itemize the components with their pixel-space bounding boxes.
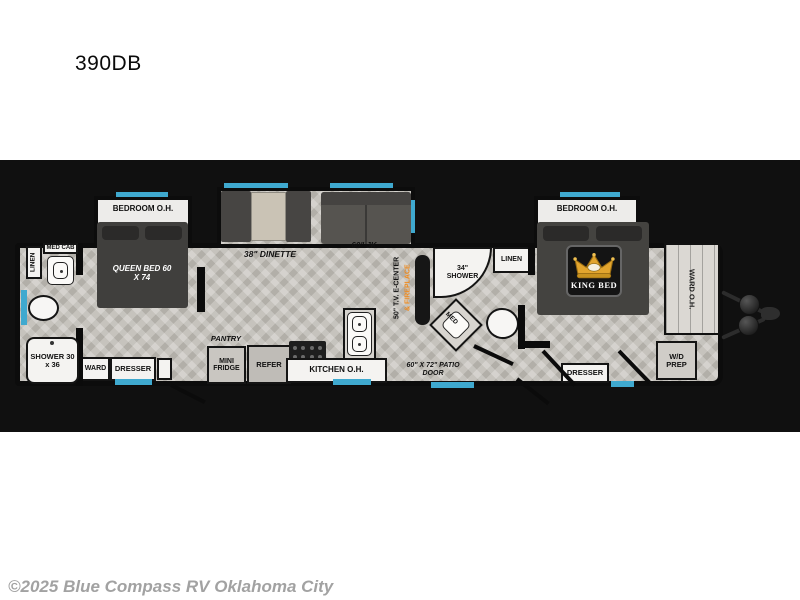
pillow bbox=[543, 226, 589, 241]
rear-bedroom-overhead-label: BEDROOM O.H. bbox=[538, 200, 636, 213]
window-accent bbox=[611, 381, 634, 387]
king-bed-label: KING BED bbox=[571, 280, 617, 290]
floorplan-band: BEDROOM O.H. BEDROOM O.H. 38" DINETTE 60… bbox=[0, 160, 800, 432]
queen-bed-label: QUEEN BED 60 X 74 bbox=[112, 264, 172, 282]
sofa-label: 60" JK bbox=[344, 241, 384, 250]
window-accent bbox=[115, 379, 152, 385]
interior-wall bbox=[197, 267, 205, 312]
mid-shower-label: 34" SHOWER bbox=[445, 265, 481, 280]
interior-wall bbox=[518, 341, 550, 348]
entry-door-swing bbox=[170, 383, 206, 404]
window-accent bbox=[431, 382, 474, 388]
dinette-seat bbox=[221, 191, 251, 242]
tv-center-label: 50" T.V. E-CENTER bbox=[392, 248, 403, 328]
med-cab-label: MED CAB bbox=[43, 243, 78, 254]
dinette-seat bbox=[286, 191, 311, 242]
ward-oh-cabinet: WARD O.H. bbox=[664, 243, 720, 335]
window-accent bbox=[116, 192, 168, 197]
copyright-text: ©2025 Blue Compass RV Oklahoma City bbox=[8, 577, 333, 597]
pantry-label: PANTRY bbox=[203, 335, 249, 344]
kitchen-sink bbox=[347, 312, 372, 356]
sink-drain bbox=[60, 270, 63, 273]
sofa-back bbox=[321, 192, 411, 205]
page-title: 390DB bbox=[75, 52, 142, 76]
front-wardrobe: WARD bbox=[81, 357, 110, 381]
interior-wall bbox=[528, 245, 535, 275]
queen-bed: QUEEN BED 60 X 74 bbox=[97, 222, 188, 308]
dinette-label: 38" DINETTE bbox=[234, 250, 306, 260]
king-bed: KING BED bbox=[537, 222, 649, 315]
pillow bbox=[145, 226, 182, 240]
front-linen-cabinet: LINEN bbox=[26, 246, 42, 279]
pillow bbox=[596, 226, 642, 241]
dinette-table bbox=[251, 192, 286, 241]
front-bath-sink bbox=[47, 256, 74, 285]
mid-linen-cabinet: LINEN bbox=[493, 247, 530, 273]
propane-tank bbox=[739, 294, 760, 315]
window-accent bbox=[224, 183, 288, 188]
refer: REFER bbox=[247, 345, 291, 384]
patio-door-label: 60" X 72" PATIO DOOR bbox=[404, 362, 462, 378]
tv-entertainment-center bbox=[415, 255, 430, 325]
wd-prep-label: W/D PREP bbox=[664, 353, 690, 369]
nightstand bbox=[157, 358, 172, 380]
window-accent bbox=[21, 290, 27, 325]
window-accent bbox=[560, 192, 620, 197]
front-dresser: DRESSER bbox=[110, 357, 156, 381]
sink-drain bbox=[358, 323, 361, 326]
propane-tank bbox=[738, 315, 759, 336]
king-bed-logo: KING BED bbox=[566, 245, 622, 297]
window-accent bbox=[333, 379, 371, 385]
shower-drain bbox=[50, 341, 54, 345]
wd-prep: W/D PREP bbox=[656, 341, 697, 380]
floorplan-page: 390DB BEDROOM O.H. BEDROOM O.H. 38" DINE… bbox=[0, 0, 800, 600]
sofa-seam bbox=[365, 205, 367, 244]
front-bath-toilet bbox=[28, 295, 59, 321]
mini-fridge: MINI FRIDGE bbox=[207, 346, 246, 384]
fireplace-label: & FIREPLACE bbox=[403, 248, 414, 328]
crown-icon bbox=[573, 252, 615, 280]
sofa-60jk bbox=[321, 192, 411, 244]
hitch-coupler bbox=[761, 307, 780, 320]
pillow bbox=[102, 226, 139, 240]
window-accent bbox=[330, 183, 393, 188]
sink-drain bbox=[358, 343, 361, 346]
front-bedroom-overhead-label: BEDROOM O.H. bbox=[98, 200, 188, 213]
